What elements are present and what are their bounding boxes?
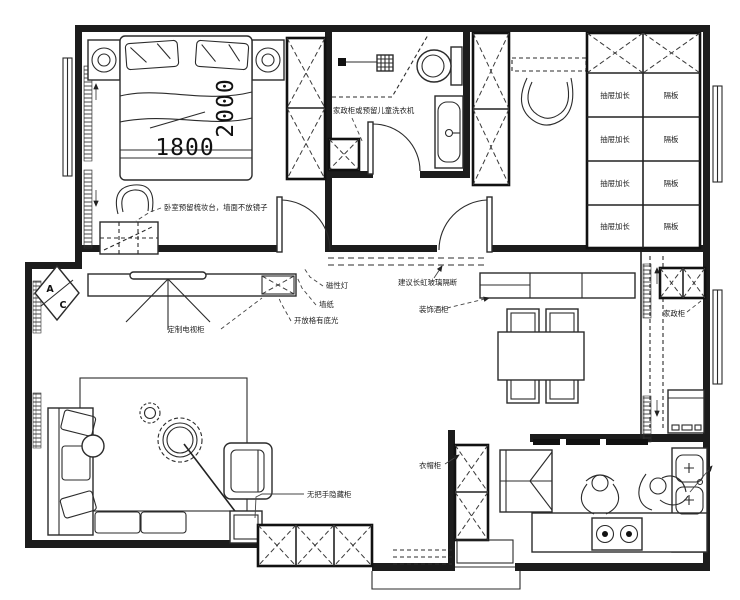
nightstand-left xyxy=(88,40,120,80)
bath-sink xyxy=(435,96,463,168)
bedroom: 1800 2000 卧室预留梳妆台，墙面不放镜子 xyxy=(88,36,325,254)
shower-head xyxy=(377,55,393,71)
bath-cabinet-note: 家政柜或预留儿童洗衣机 xyxy=(333,106,415,115)
hidden-cabinet xyxy=(258,525,372,566)
stove xyxy=(592,518,642,550)
utility-cabinet xyxy=(660,268,705,298)
dresser-note: 卧室预留梳妆台，墙面不放镜子 xyxy=(164,203,268,212)
bed-width-dim: 1800 xyxy=(155,135,214,161)
bed: 1800 2000 xyxy=(120,36,252,180)
balcony: 家政柜 xyxy=(650,256,705,433)
wine-cabinet xyxy=(480,273,635,298)
coat-closet-label: 衣帽柜 xyxy=(419,461,442,470)
glass-partition-label: 建议长虹玻璃隔断 xyxy=(398,278,458,287)
tv-wall xyxy=(88,272,296,330)
ac-letter-bottom: C xyxy=(60,300,67,311)
magnetic-light-label: 磁性灯 xyxy=(326,281,349,290)
dining xyxy=(498,309,584,403)
dining-table xyxy=(498,332,584,380)
bedroom-wardrobe xyxy=(287,38,325,179)
shelf-label-3: 隔板 xyxy=(664,179,679,188)
side-table xyxy=(82,435,104,457)
planter-large xyxy=(158,418,202,462)
wine-cabinet-label: 装饰酒柜 xyxy=(419,305,449,314)
cloakroom: 抽屉加长 抽屉加长 抽屉加长 抽屉加长 隔板 隔板 隔板 隔板 xyxy=(473,33,700,248)
drawer-label-3: 抽屉加长 xyxy=(600,179,630,188)
coat-closet xyxy=(455,445,488,540)
tv-cabinet-label: 定制电视柜 xyxy=(168,325,206,334)
drawer-label-2: 抽屉加长 xyxy=(600,135,630,144)
floor-plan-canvas: 1800 2000 卧室预留梳妆台，墙面不放镜子 xyxy=(0,0,740,600)
cloak-tall-cabinet xyxy=(473,33,509,185)
wallpaper-label: 墙纸 xyxy=(319,300,334,309)
shower-valve xyxy=(338,58,346,66)
tv xyxy=(130,272,206,279)
toilet xyxy=(417,47,462,85)
drawer-label-1: 抽屉加长 xyxy=(600,91,630,100)
fridge xyxy=(500,450,552,512)
bed-length-dim: 2000 xyxy=(213,78,239,137)
plant-small xyxy=(140,403,160,423)
shelf-label-1: 隔板 xyxy=(664,91,679,100)
cloak-mirror xyxy=(512,58,586,71)
sofa xyxy=(48,408,186,535)
entry-porch xyxy=(372,540,520,589)
open-shelf-label: 开放格有底光 xyxy=(294,316,339,325)
armchair xyxy=(224,443,272,499)
shelf-label-2: 隔板 xyxy=(664,135,679,144)
kitchen-window xyxy=(533,439,648,445)
bath-cabinet xyxy=(329,139,359,170)
dressing-table xyxy=(100,185,158,254)
shelf-label-4: 隔板 xyxy=(664,222,679,231)
ac-letter-top: A xyxy=(46,284,54,295)
ac-symbol: A C xyxy=(35,266,79,320)
drawer-label-4: 抽屉加长 xyxy=(600,222,630,231)
washing-machine xyxy=(668,390,704,433)
figure-cooking xyxy=(581,475,618,514)
nightstand-right xyxy=(252,40,284,80)
hidden-cabinet-label: 无把手隐藏柜 xyxy=(307,490,352,499)
kitchen: 衣帽柜 xyxy=(419,439,712,552)
bathroom: 家政柜或预留儿童洗衣机 xyxy=(329,35,463,170)
sofa-zone xyxy=(48,378,272,543)
cloak-grid: 抽屉加长 抽屉加长 抽屉加长 抽屉加长 隔板 隔板 隔板 隔板 xyxy=(587,33,700,248)
utility-cabinet-label: 家政柜 xyxy=(663,309,686,318)
floor-plan: 1800 2000 卧室预留梳妆台，墙面不放镜子 xyxy=(0,0,740,600)
